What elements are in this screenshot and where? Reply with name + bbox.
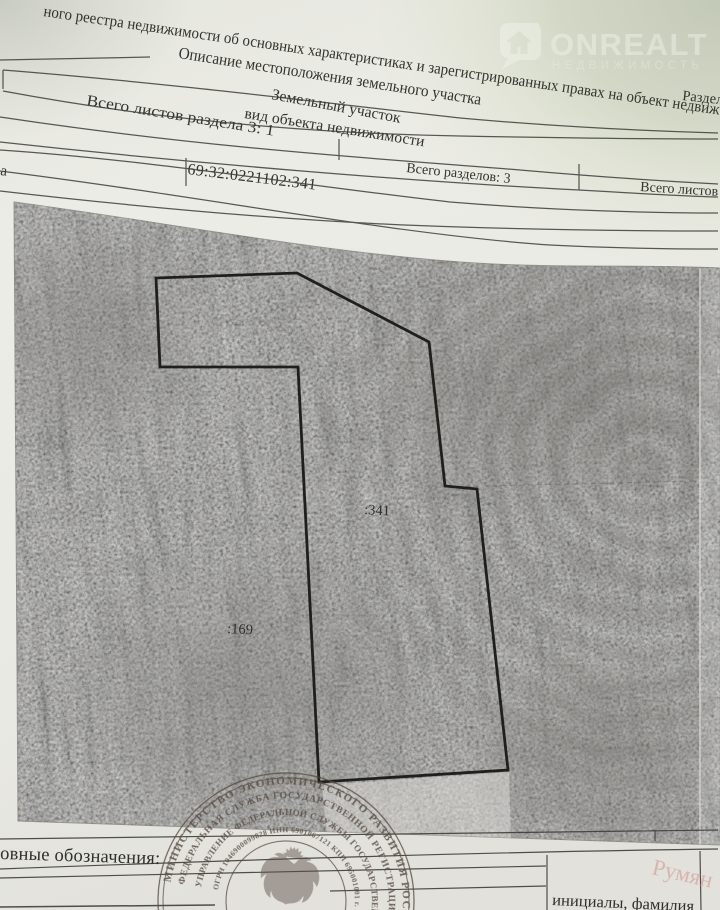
svg-text:ONREALT: ONREALT — [550, 27, 708, 62]
svg-text:НЕДВИЖИМОСТЬ: НЕДВИЖИМОСТЬ — [552, 60, 703, 72]
svg-text::169: :169 — [227, 621, 254, 638]
svg-text::341: :341 — [364, 502, 391, 519]
